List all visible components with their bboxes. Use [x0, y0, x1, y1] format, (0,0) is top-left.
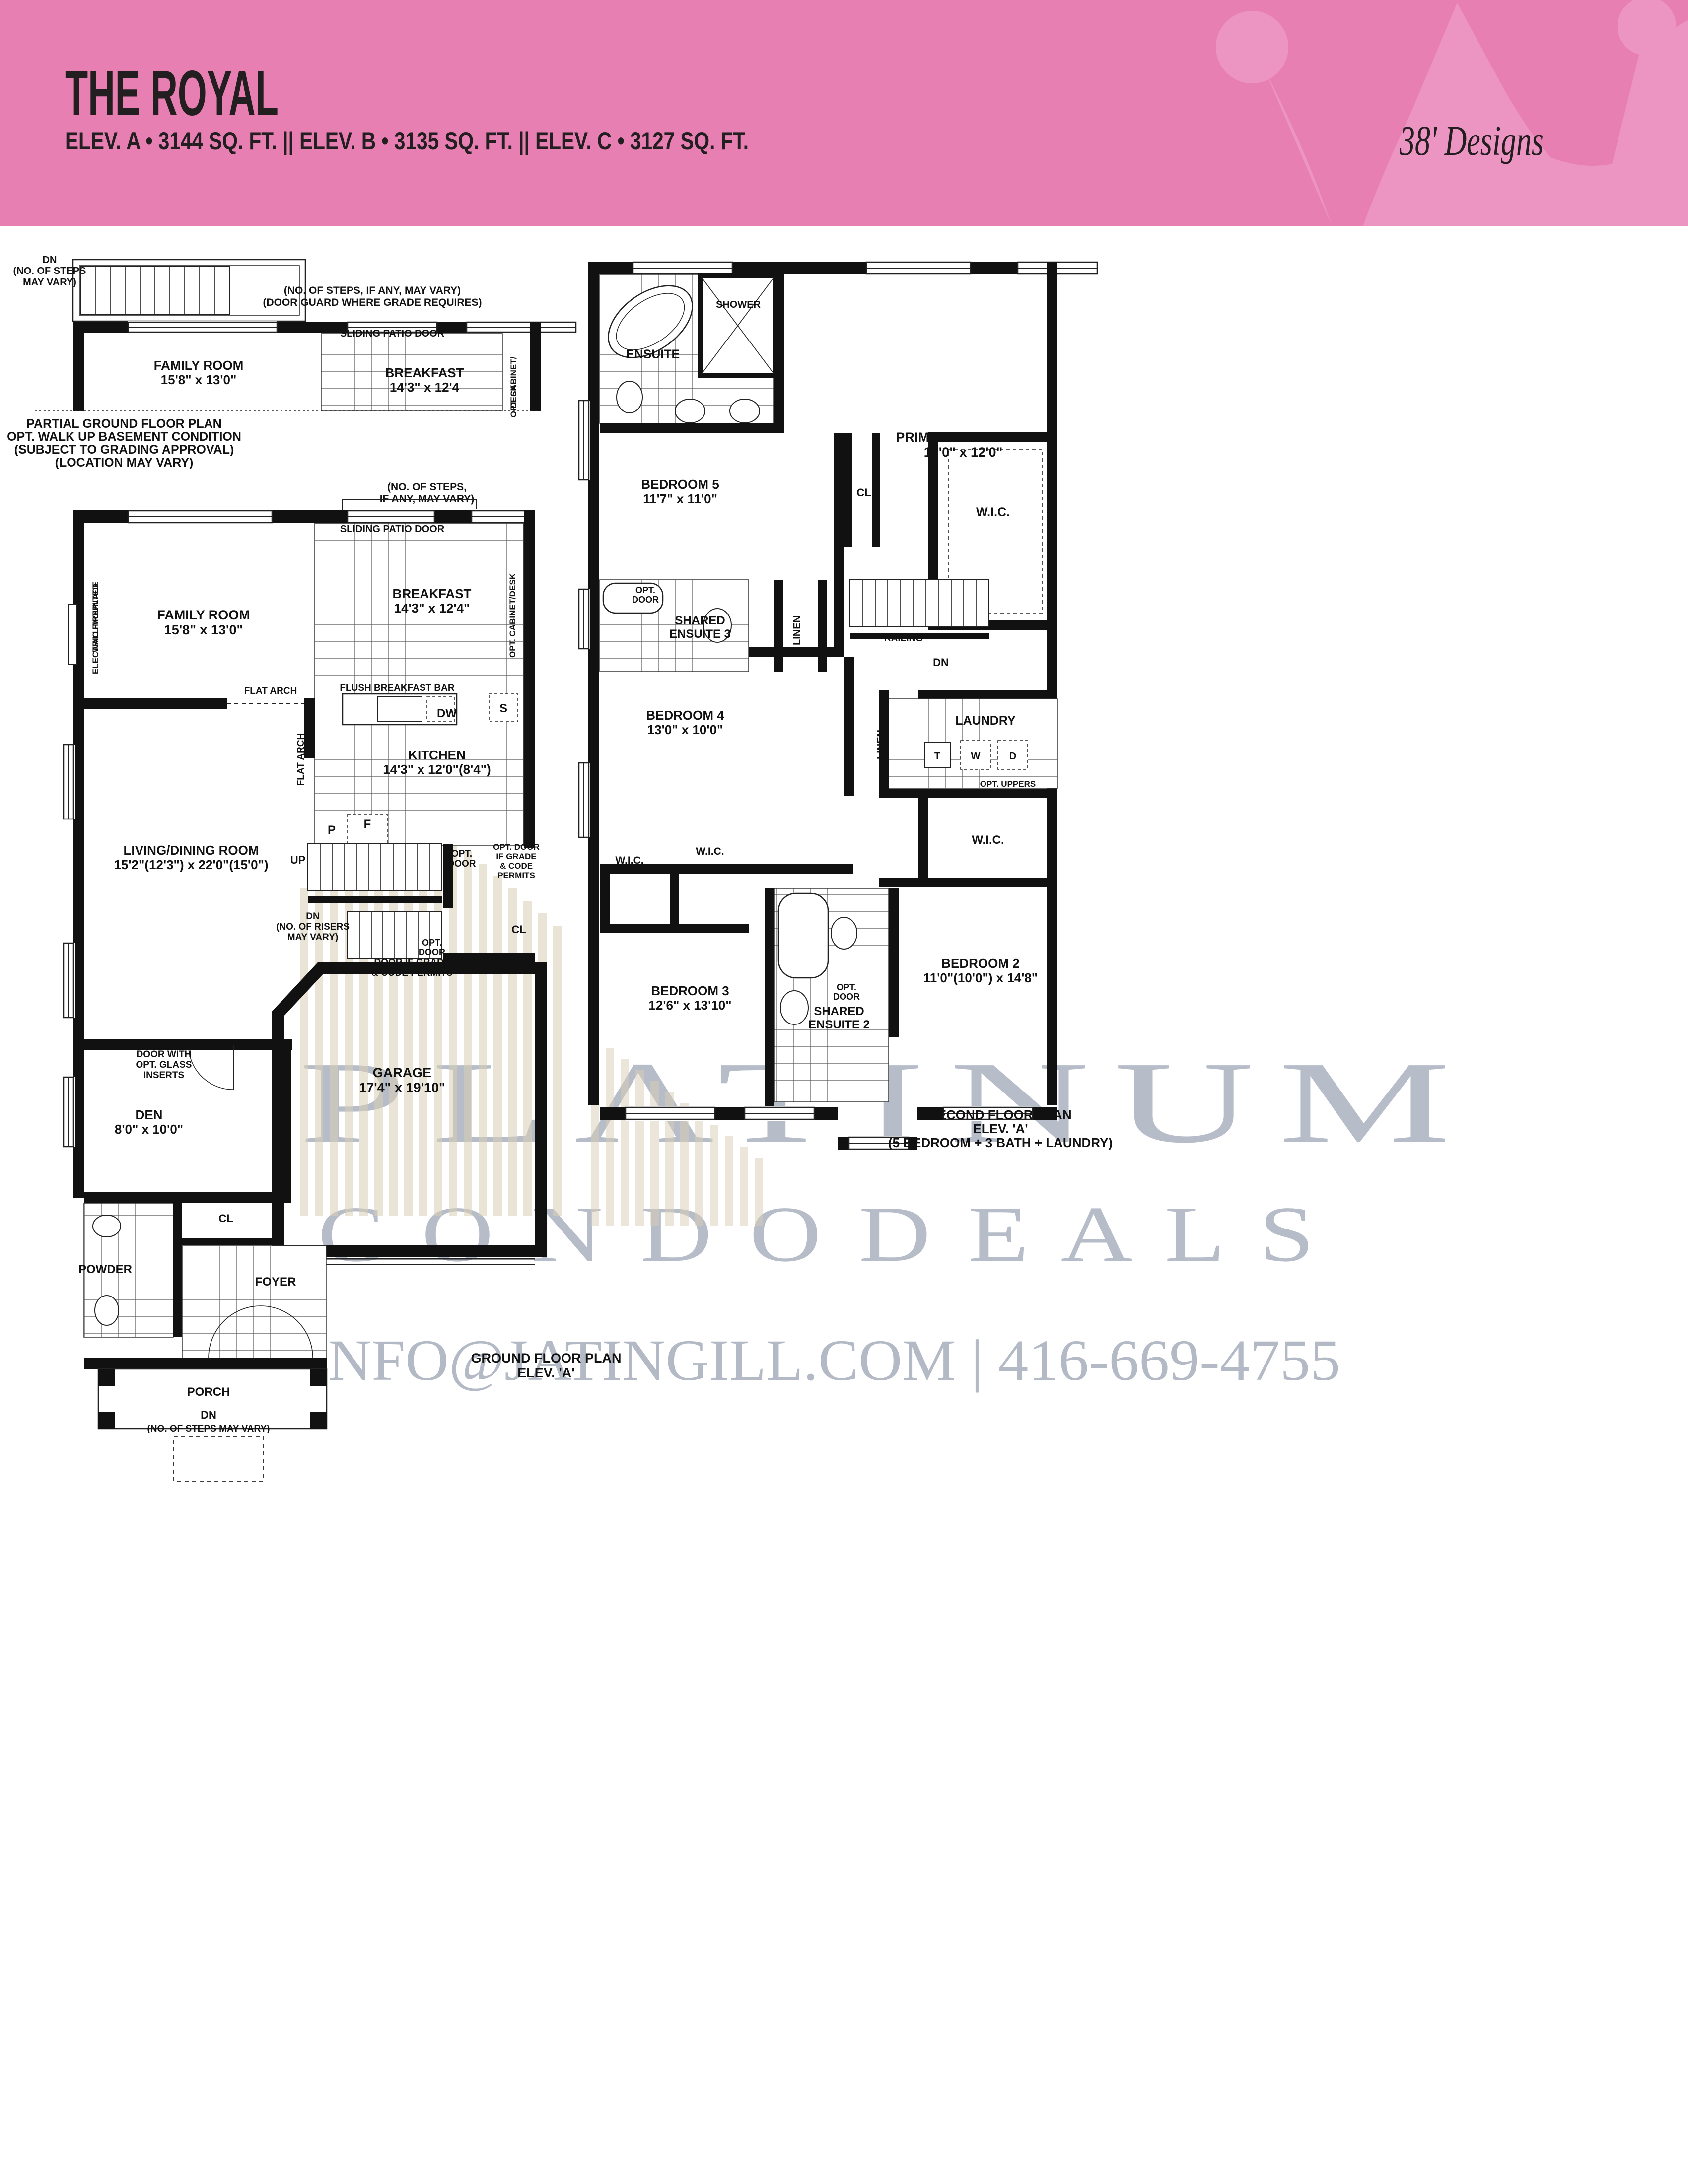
svg-text:DEN: DEN [136, 1107, 163, 1122]
svg-text:W: W [971, 751, 981, 762]
svg-text:OPT.: OPT. [451, 849, 472, 859]
svg-text:ELECTRIC FIREPLACE: ELECTRIC FIREPLACE [91, 582, 100, 674]
svg-text:PORCH: PORCH [187, 1385, 230, 1399]
svg-text:FAMILY ROOM: FAMILY ROOM [157, 608, 250, 622]
svg-text:KITCHEN: KITCHEN [408, 748, 466, 762]
svg-text:OPT. WALK UP BASEMENT CONDITIO: OPT. WALK UP BASEMENT CONDITION [7, 430, 241, 444]
svg-text:38' Designs: 38' Designs [1399, 117, 1544, 164]
svg-text:W.I.C.: W.I.C. [976, 505, 1010, 519]
svg-text:(NO. OF STEPS,: (NO. OF STEPS, [387, 481, 467, 493]
svg-text:IF GRADE: IF GRADE [496, 852, 536, 861]
svg-text:LIVING/DINING ROOM: LIVING/DINING ROOM [124, 843, 259, 858]
svg-text:FOYER: FOYER [255, 1275, 296, 1289]
svg-text:OPT. DOOR: OPT. DOOR [493, 842, 540, 852]
svg-text:W.I.C.: W.I.C. [696, 846, 724, 857]
svg-text:11'0"(10'0") x 14'8": 11'0"(10'0") x 14'8" [923, 970, 1038, 985]
svg-text:P: P [328, 823, 336, 837]
svg-text:15'2"(12'3") x 22'0"(15'0"): 15'2"(12'3") x 22'0"(15'0") [114, 857, 268, 872]
svg-text:POWDER: POWDER [78, 1263, 132, 1276]
svg-text:ENSUITE: ENSUITE [626, 347, 680, 361]
svg-text:D: D [1009, 751, 1016, 762]
svg-text:DOOR WITH: DOOR WITH [137, 1049, 192, 1060]
svg-text:SHARED: SHARED [675, 614, 725, 627]
svg-text:12'6" x 13'10": 12'6" x 13'10" [648, 998, 731, 1013]
svg-text:BEDROOM 2: BEDROOM 2 [941, 956, 1019, 971]
svg-text:14'3" x 12'4: 14'3" x 12'4 [390, 380, 460, 395]
svg-text:DOOR: DOOR [419, 947, 445, 957]
svg-text:(LOCATION MAY VARY): (LOCATION MAY VARY) [55, 456, 194, 470]
svg-text:CL: CL [218, 1212, 233, 1225]
svg-text:S: S [499, 702, 507, 715]
svg-text:OPT.: OPT. [635, 585, 655, 595]
svg-text:ELEV. 'A': ELEV. 'A' [517, 1365, 574, 1380]
svg-text:SHARED: SHARED [814, 1005, 864, 1018]
svg-text:(5 BEDROOM + 3 BATH + LAUNDRY): (5 BEDROOM + 3 BATH + LAUNDRY) [888, 1135, 1113, 1150]
svg-text:OPT. GLASS: OPT. GLASS [136, 1060, 192, 1070]
svg-text:(DOOR GUARD WHERE GRADE REQUIR: (DOOR GUARD WHERE GRADE REQUIRES) [263, 297, 482, 308]
svg-text:OPT.: OPT. [837, 982, 856, 992]
svg-text:11'7" x 11'0": 11'7" x 11'0" [643, 491, 717, 506]
svg-text:CL: CL [856, 486, 871, 499]
svg-text:DESK: DESK [509, 385, 518, 409]
svg-text:DN: DN [306, 911, 319, 922]
svg-text:(NO. OF STEPS, IF ANY, MAY VAR: (NO. OF STEPS, IF ANY, MAY VARY) [284, 285, 461, 296]
svg-text:BEDROOM 5: BEDROOM 5 [641, 477, 719, 492]
svg-text:LINEN: LINEN [792, 615, 803, 645]
svg-text:FLUSH BREAKFAST BAR: FLUSH BREAKFAST BAR [340, 683, 454, 693]
svg-text:15'8" x 13'0": 15'8" x 13'0" [164, 622, 243, 637]
svg-text:LAUNDRY: LAUNDRY [955, 714, 1016, 728]
svg-text:PERMITS: PERMITS [497, 871, 535, 880]
svg-text:OPT. UPPERS: OPT. UPPERS [980, 779, 1036, 789]
svg-text:14'3" x 12'0"(8'4"): 14'3" x 12'0"(8'4") [383, 762, 491, 777]
svg-text:15'8" x 13'0": 15'8" x 13'0" [161, 372, 237, 387]
svg-text:SECOND FLOOR PLAN: SECOND FLOOR PLAN [929, 1107, 1071, 1122]
svg-text:CL: CL [511, 923, 526, 936]
svg-text:(NO. OF RISERS: (NO. OF RISERS [276, 922, 350, 932]
svg-text:BREAKFAST: BREAKFAST [385, 365, 464, 380]
svg-text:13'0" x 10'0": 13'0" x 10'0" [647, 722, 723, 737]
svg-text:DN: DN [201, 1409, 216, 1421]
svg-text:DW: DW [437, 707, 457, 720]
svg-text:THE ROYAL: THE ROYAL [65, 58, 279, 129]
svg-text:(NO. OF STEPS: (NO. OF STEPS [13, 266, 86, 276]
svg-text:SHOWER: SHOWER [716, 299, 761, 310]
svg-text:(NO. OF STEPS MAY VARY): (NO. OF STEPS MAY VARY) [147, 1424, 270, 1434]
svg-text:F: F [364, 818, 371, 831]
svg-text:DOOR: DOOR [632, 595, 659, 605]
svg-text:BEDROOM 4: BEDROOM 4 [646, 708, 724, 723]
svg-text:OPT. CABINET/DESK: OPT. CABINET/DESK [508, 573, 517, 658]
svg-text:LINEN: LINEN [875, 730, 886, 759]
svg-text:W.I.C.: W.I.C. [972, 833, 1004, 847]
svg-text:14'3" x 12'4": 14'3" x 12'4" [394, 601, 470, 615]
svg-text:BEDROOM 3: BEDROOM 3 [651, 983, 729, 998]
svg-text:FLAT ARCH: FLAT ARCH [244, 686, 297, 696]
svg-text:DN: DN [933, 656, 949, 669]
svg-text:MAY VARY): MAY VARY) [287, 932, 338, 943]
svg-text:DN: DN [43, 255, 57, 266]
svg-text:ELEV. 'A': ELEV. 'A' [973, 1121, 1028, 1136]
svg-text:SLIDING PATIO DOOR: SLIDING PATIO DOOR [340, 328, 445, 339]
svg-text:GARAGE: GARAGE [373, 1065, 432, 1080]
svg-text:RAILING: RAILING [884, 633, 923, 644]
svg-text:BREAKFAST: BREAKFAST [393, 586, 472, 601]
svg-text:SLIDING PATIO DOOR: SLIDING PATIO DOOR [340, 524, 445, 535]
svg-text:W.I.C.: W.I.C. [615, 855, 643, 866]
svg-text:GROUND FLOOR PLAN: GROUND FLOOR PLAN [471, 1351, 622, 1365]
svg-text:17'4" x 19'10": 17'4" x 19'10" [359, 1080, 445, 1095]
svg-text:(SUBJECT TO GRADING APPROVAL): (SUBJECT TO GRADING APPROVAL) [14, 443, 234, 457]
svg-text:FAMILY ROOM: FAMILY ROOM [154, 358, 244, 373]
svg-text:8'0" x 10'0": 8'0" x 10'0" [115, 1122, 183, 1137]
svg-text:T: T [934, 751, 940, 762]
svg-text:DOOR: DOOR [833, 992, 860, 1002]
svg-text:UP: UP [290, 854, 306, 866]
svg-text:ELEV. A • 3144 SQ. FT. ||: ELEV. A • 3144 SQ. FT. || ELEV. B • 3135… [65, 127, 749, 155]
svg-text:& CODE: & CODE [500, 861, 533, 871]
svg-text:MAY VARY): MAY VARY) [23, 277, 76, 288]
svg-text:OPT.: OPT. [422, 938, 442, 948]
svg-text:INFO@JATINGILL.COM | 416-669-4: INFO@JATINGILL.COM | 416-669-4755 [308, 1328, 1340, 1393]
svg-text:PARTIAL GROUND FLOOR PLAN: PARTIAL GROUND FLOOR PLAN [26, 417, 222, 431]
svg-text:ENSUITE 3: ENSUITE 3 [669, 627, 731, 641]
svg-text:ENSUITE 2: ENSUITE 2 [808, 1018, 870, 1031]
svg-text:INSERTS: INSERTS [143, 1070, 184, 1081]
